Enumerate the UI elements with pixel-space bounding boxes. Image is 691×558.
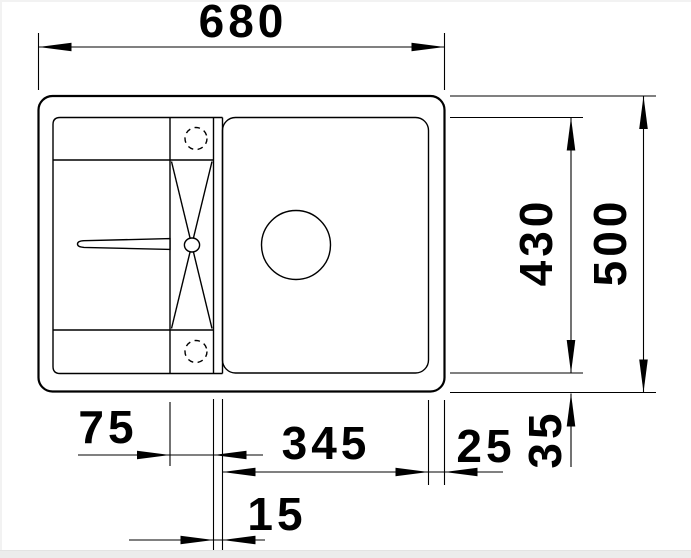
arrowhead-right bbox=[181, 536, 214, 545]
arrowhead-down bbox=[639, 360, 648, 393]
arrowhead-left bbox=[214, 451, 247, 460]
arrowhead-up bbox=[639, 96, 648, 129]
dim-label-overall-width: 680 bbox=[199, 0, 288, 44]
dim-label-overall-depth: 500 bbox=[587, 198, 633, 287]
arrowhead-down bbox=[567, 340, 576, 373]
dim-label-edge-bottom: 35 bbox=[522, 409, 568, 468]
channel-center-knob bbox=[184, 238, 199, 252]
tap-hole-bottom bbox=[185, 341, 207, 363]
dim-label-divider: 15 bbox=[247, 491, 306, 537]
page-edge-left bbox=[0, 0, 2, 558]
dim-label-drainer-width: 75 bbox=[78, 404, 137, 450]
arrowhead-right bbox=[412, 43, 445, 52]
bowl-drain-circle bbox=[262, 211, 331, 280]
main-bowl-outline bbox=[223, 118, 429, 374]
channel-crosshatch bbox=[172, 162, 213, 329]
arrowhead-right bbox=[137, 451, 170, 460]
dim-label-bowl-width: 345 bbox=[282, 420, 371, 466]
drain-groove bbox=[78, 239, 171, 250]
dim-divider bbox=[129, 536, 265, 545]
page-edge-top bbox=[0, 0, 691, 2]
arrowhead-left bbox=[39, 43, 72, 52]
sink-top-view bbox=[39, 96, 445, 392]
sink-dimension-drawing: 680 430 500 75 345 25 35 15 bbox=[0, 0, 691, 558]
arrowhead-right bbox=[396, 468, 429, 477]
arrowhead-up bbox=[567, 118, 576, 151]
page-edge-bottom bbox=[0, 550, 691, 558]
arrowhead-left bbox=[223, 468, 256, 477]
dim-label-edge-right: 25 bbox=[456, 423, 515, 469]
tap-hole-top bbox=[185, 128, 207, 150]
dim-label-cutout-depth: 430 bbox=[513, 198, 559, 287]
